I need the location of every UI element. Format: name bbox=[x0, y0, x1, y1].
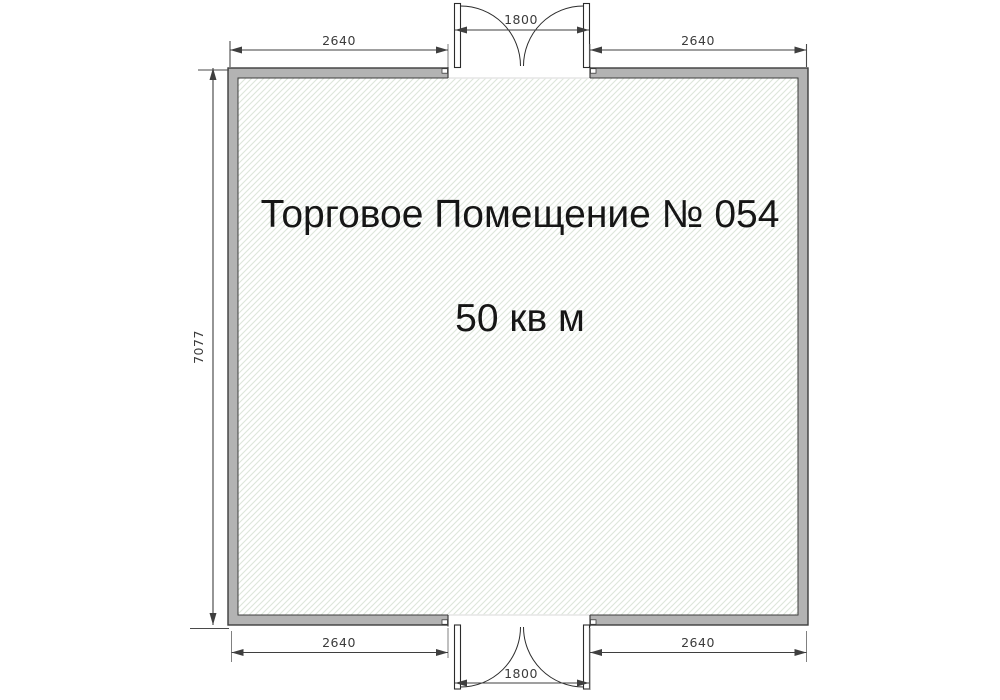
dim-text-bottom-door: 1800 bbox=[504, 666, 538, 681]
floor-plan-drawing: 2640 1800 2640 7077 2640 1800 2640 Торго… bbox=[0, 0, 1000, 700]
room-title: Торговое Помещение № 054 bbox=[261, 193, 780, 236]
dim-text-left-height: 7077 bbox=[191, 330, 206, 364]
dim-text-top-right: 2640 bbox=[681, 33, 715, 48]
top-door-leaf-left bbox=[455, 4, 461, 68]
top-door-opening bbox=[448, 66, 590, 79]
top-jamb-notch-left bbox=[442, 69, 448, 74]
top-jamb-notch-right bbox=[591, 69, 597, 74]
bottom-door-leaf-left bbox=[455, 625, 461, 689]
room-area: 50 кв м bbox=[455, 297, 585, 340]
bottom-door-leaf-right bbox=[584, 625, 590, 689]
bottom-door-opening bbox=[448, 614, 590, 627]
bottom-jamb-notch-left bbox=[442, 620, 448, 625]
top-door-leaf-right bbox=[584, 4, 590, 68]
dim-text-top-left: 2640 bbox=[322, 33, 356, 48]
room-interior-hatch bbox=[238, 78, 798, 615]
bottom-jamb-notch-right bbox=[591, 620, 597, 625]
dim-text-bottom-right: 2640 bbox=[681, 635, 715, 650]
room-walls bbox=[228, 66, 808, 627]
floor-plan: 2640 1800 2640 7077 2640 1800 2640 Торго… bbox=[0, 0, 1000, 700]
dim-text-top-door: 1800 bbox=[504, 12, 538, 27]
dim-text-bottom-left: 2640 bbox=[322, 635, 356, 650]
